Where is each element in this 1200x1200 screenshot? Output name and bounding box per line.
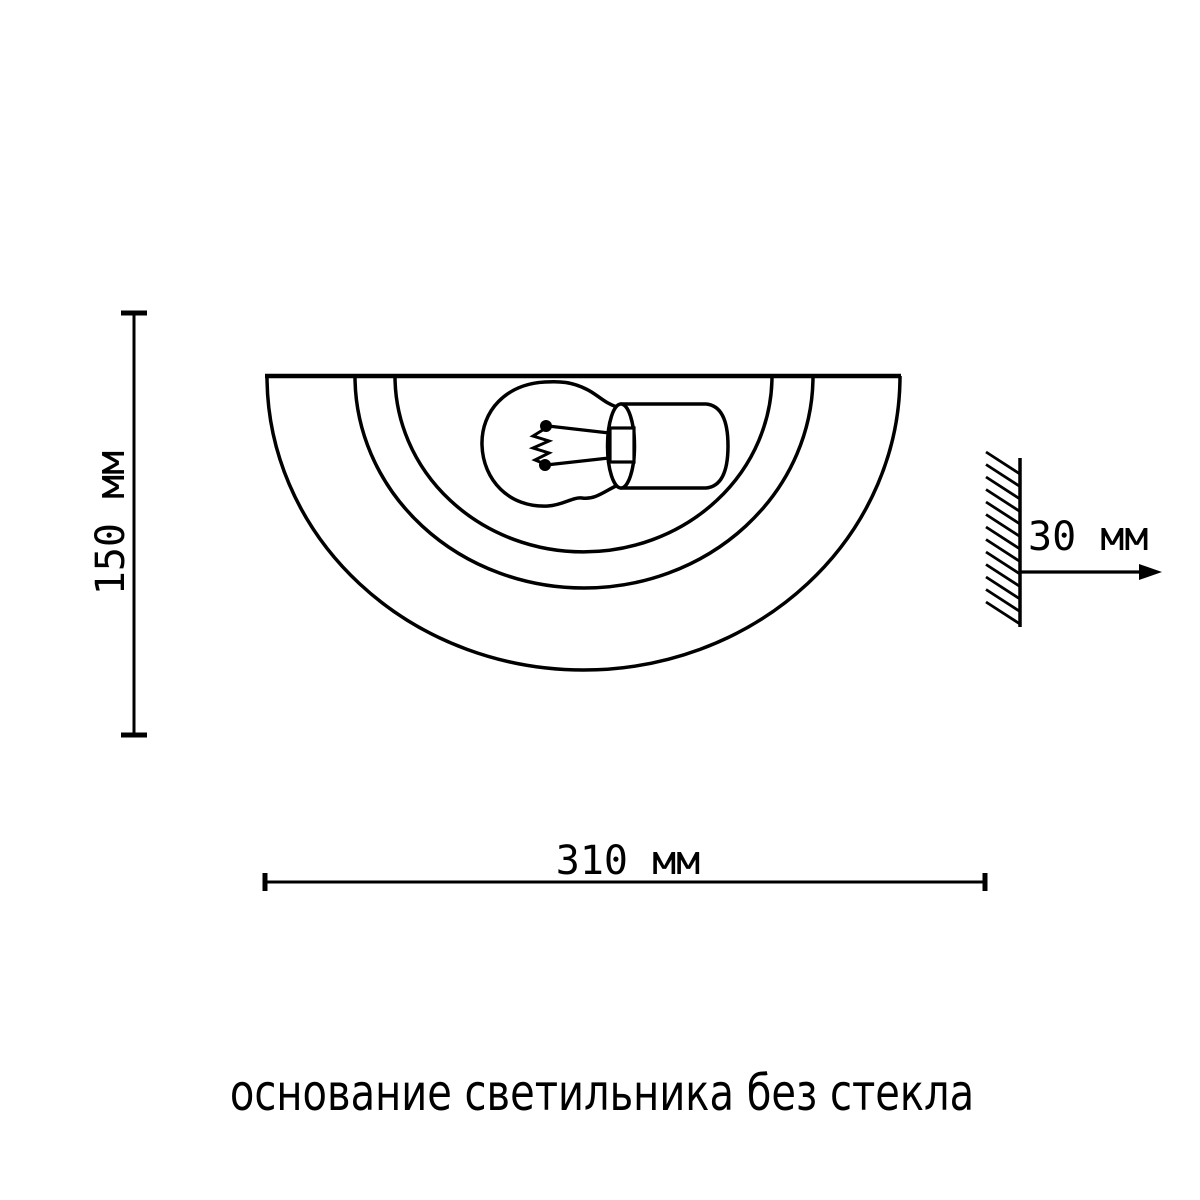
technical-drawing bbox=[0, 0, 1200, 1200]
filament-node bbox=[540, 420, 552, 432]
depth-dimension-label: 30 мм bbox=[1028, 517, 1148, 557]
caption: основание светильника без стекла bbox=[230, 1066, 974, 1120]
bulb-glass bbox=[482, 382, 617, 506]
socket-contact bbox=[610, 428, 634, 462]
diagram-canvas: 150 мм 310 мм 30 мм основание светильник… bbox=[0, 0, 1200, 1200]
filament-node bbox=[539, 459, 551, 471]
arrowhead bbox=[1139, 564, 1162, 580]
wall-hatch bbox=[986, 452, 1020, 627]
depth-arrow bbox=[1020, 564, 1162, 580]
height-dimension-label: 150 мм bbox=[91, 451, 131, 596]
socket-cylinder bbox=[622, 404, 728, 488]
light-bulb-icon bbox=[482, 382, 728, 506]
width-dimension-label: 310 мм bbox=[556, 841, 701, 881]
